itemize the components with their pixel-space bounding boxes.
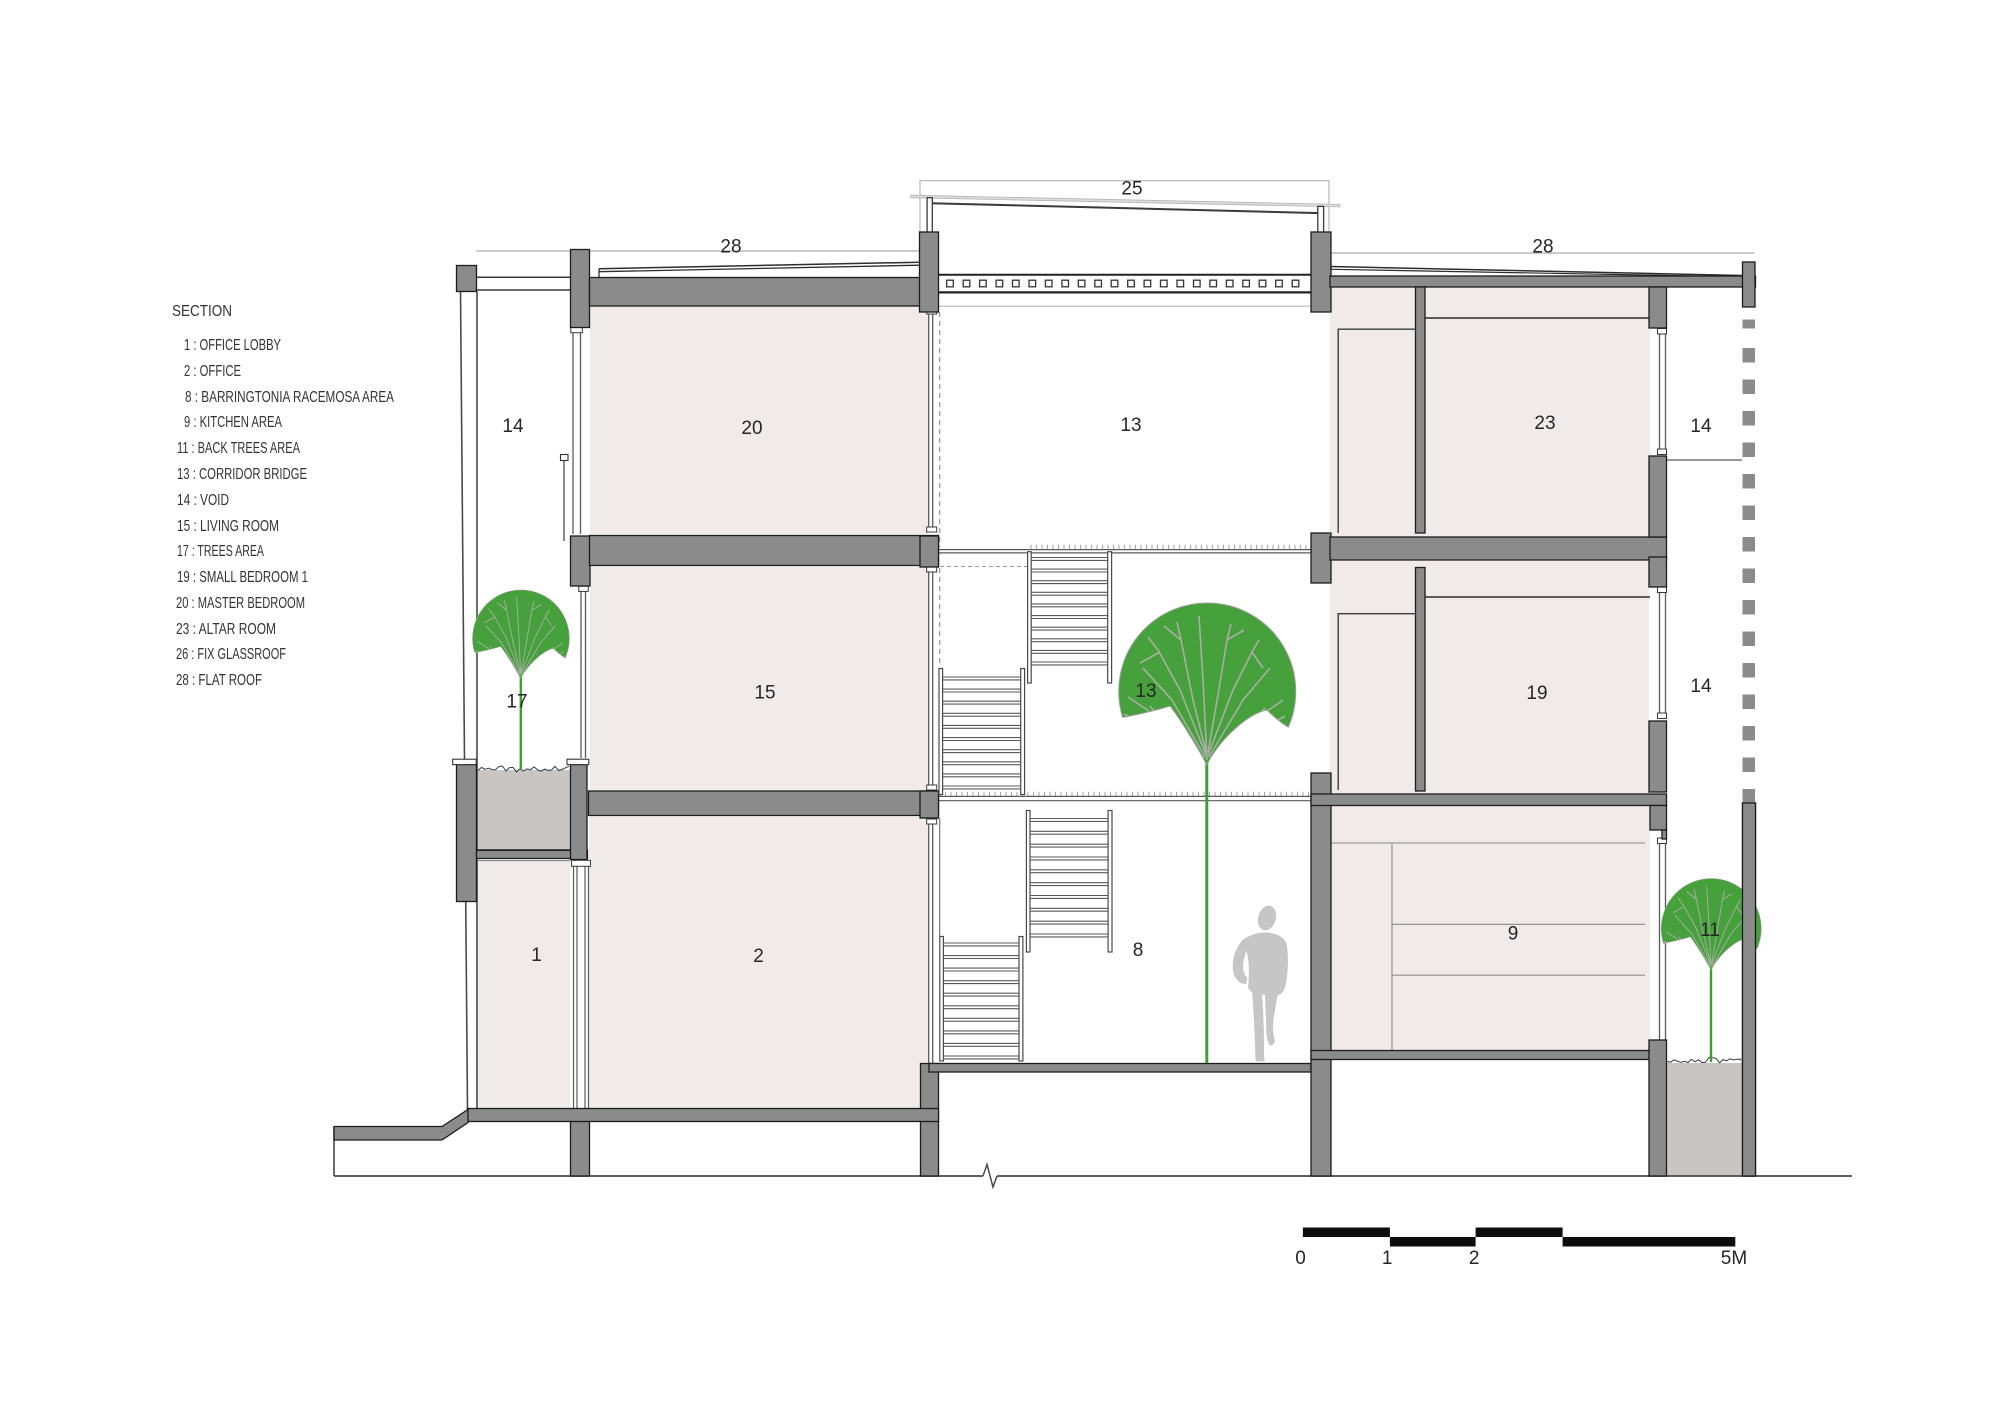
svg-text:20: 20 xyxy=(741,418,762,439)
svg-text:26 : FIX GLASSROOF: 26 : FIX GLASSROOF xyxy=(176,646,286,663)
svg-text:28: 28 xyxy=(1532,237,1553,258)
svg-text:17: 17 xyxy=(506,692,527,713)
svg-text:1: 1 xyxy=(1382,1248,1393,1269)
svg-text:2: 2 xyxy=(753,946,764,967)
svg-text:2 : OFFICE: 2 : OFFICE xyxy=(184,363,241,380)
svg-text:8: 8 xyxy=(1133,940,1144,961)
svg-text:14: 14 xyxy=(1690,416,1712,437)
svg-text:1 : OFFICE LOBBY: 1 : OFFICE LOBBY xyxy=(184,337,281,354)
svg-text:11: 11 xyxy=(1700,920,1720,941)
svg-text:28: 28 xyxy=(720,237,741,258)
svg-text:9 : KITCHEN AREA: 9 : KITCHEN AREA xyxy=(184,414,282,431)
svg-text:5M: 5M xyxy=(1721,1248,1747,1269)
svg-text:SECTION: SECTION xyxy=(172,303,232,320)
svg-text:8 : BARRINGTONIA RACEMOSA ARE: 8 : BARRINGTONIA RACEMOSA AREA xyxy=(185,389,394,406)
svg-text:11 : BACK TREES AREA: 11 : BACK TREES AREA xyxy=(177,440,300,457)
svg-text:15 : LIVING ROOM: 15 : LIVING ROOM xyxy=(177,518,279,535)
svg-text:0: 0 xyxy=(1295,1248,1306,1269)
svg-text:19: 19 xyxy=(1526,683,1547,704)
svg-text:28 : FLAT ROOF: 28 : FLAT ROOF xyxy=(176,672,262,689)
svg-text:17 : TREES AREA: 17 : TREES AREA xyxy=(177,543,264,560)
svg-text:19 : SMALL BEDROOM 1: 19 : SMALL BEDROOM 1 xyxy=(177,569,308,586)
svg-text:13: 13 xyxy=(1135,681,1156,702)
svg-text:23 : ALTAR ROOM: 23 : ALTAR ROOM xyxy=(176,621,276,638)
svg-text:25: 25 xyxy=(1121,179,1142,200)
svg-text:13: 13 xyxy=(1120,415,1141,436)
svg-text:13 : CORRIDOR BRIDGE: 13 : CORRIDOR BRIDGE xyxy=(177,466,307,483)
svg-text:23: 23 xyxy=(1534,413,1555,434)
svg-text:15: 15 xyxy=(754,683,775,704)
svg-text:14 : VOID: 14 : VOID xyxy=(177,492,229,509)
svg-text:14: 14 xyxy=(1690,676,1712,697)
svg-text:1: 1 xyxy=(531,945,542,966)
svg-text:9: 9 xyxy=(1508,924,1519,945)
svg-text:2: 2 xyxy=(1469,1248,1480,1269)
svg-text:20 : MASTER BEDROOM: 20 : MASTER BEDROOM xyxy=(176,595,305,612)
svg-text:14: 14 xyxy=(502,416,524,437)
